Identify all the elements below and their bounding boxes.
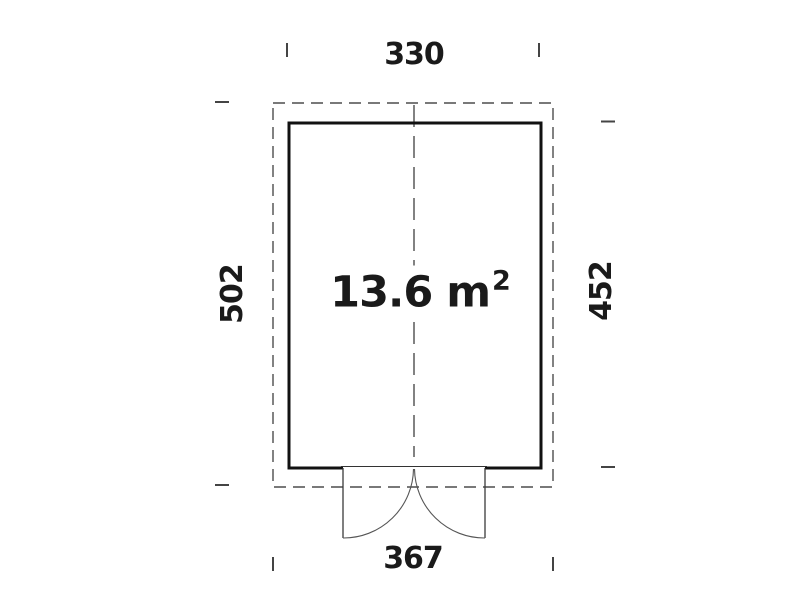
area-value: 13.6 m — [330, 272, 490, 315]
floor-plan-diagram: 330 502 452 367 13.6 m2 — [0, 0, 800, 600]
dimension-label-bottom: 367 — [383, 544, 443, 574]
dimension-label-right: 452 — [587, 261, 617, 321]
dimension-label-left: 502 — [218, 264, 248, 324]
area-label: 13.6 m2 — [320, 266, 520, 319]
door-swing-arc-left — [343, 469, 414, 538]
dimension-label-top: 330 — [384, 40, 444, 70]
door-swing-arc-right — [415, 469, 486, 538]
area-superscript: 2 — [492, 268, 510, 295]
